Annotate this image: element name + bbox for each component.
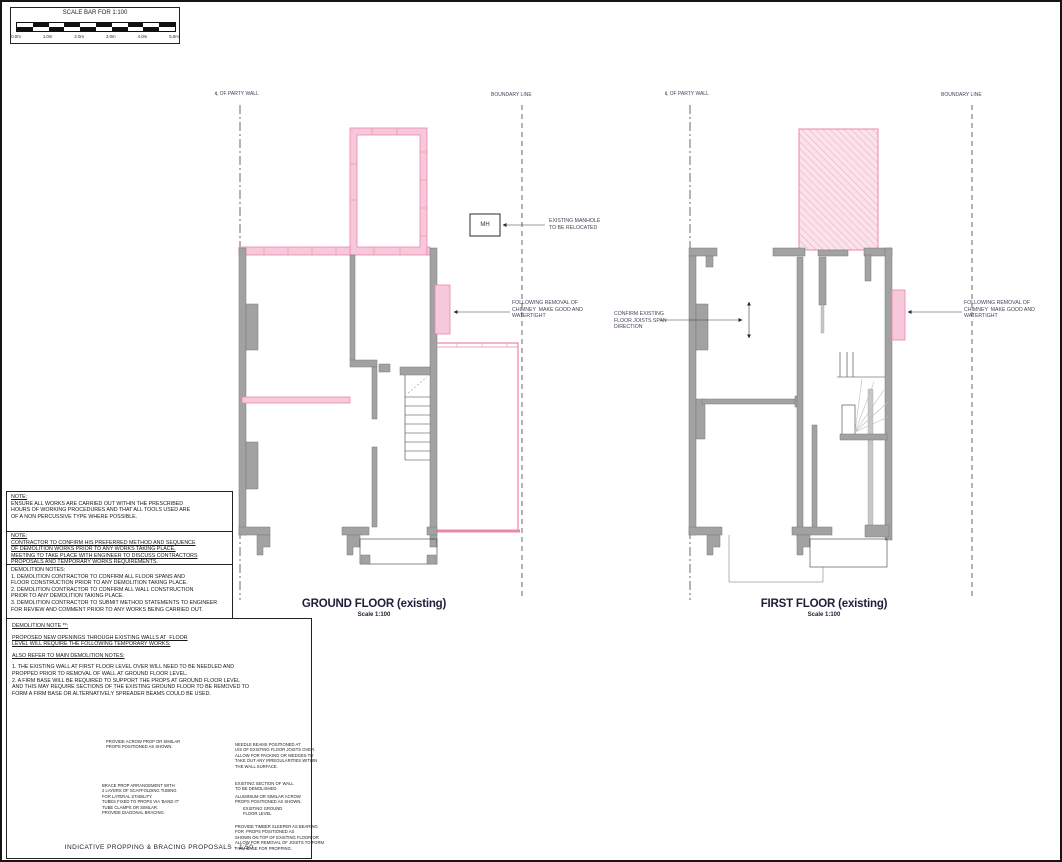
first-floor-plan [661, 105, 972, 600]
gf-front-wall [239, 527, 437, 555]
scale-tick-label: 0.0m [7, 34, 25, 39]
gf-spine-wall [350, 255, 355, 360]
drawing-sheet: SCALE BAR FOR 1:100 0.0m 1.0m 2.0m 3.0m … [0, 0, 1062, 862]
ground-floor-plan [239, 105, 545, 600]
demolition-note-heading: DEMOLITION NOTE **: [12, 623, 306, 630]
scale-tick-label: 2.0m [70, 34, 88, 39]
ff-spine-wall [797, 257, 803, 540]
gf-chimney-breast-2 [246, 442, 258, 489]
ff-title: FIRST FLOOR (existing) [729, 598, 919, 610]
gf-stair-wall [400, 367, 430, 375]
gf-bay-window [360, 539, 437, 564]
note-box-1: NOTE: ENSURE ALL WORKS ARE CARRIED OUT W… [6, 491, 233, 532]
note-1-heading: NOTE: [11, 494, 27, 500]
gf-party-wall [239, 248, 246, 535]
demolition-note-para1: PROPOSED NEW OPENINGS THROUGH EXISTING W… [12, 635, 306, 648]
note-2-body: CONTRACTOR TO CONFIRM HIS PREFERRED METH… [11, 540, 228, 566]
prop-annotation-needle: NEEDLE BEAMS POSITIONED AT U/S OF EXISTI… [235, 742, 317, 769]
note-2-heading: NOTE: [11, 533, 27, 539]
prop-annotation-props: PROVIDE ACROW PROP OR SIMILAR PROPS POSI… [106, 739, 180, 750]
ff-joist-note: CONFIRM EXISTING FLOOR JOISTS SPAN DIREC… [614, 311, 667, 331]
ff-demolition-hatch-pink [799, 129, 878, 250]
prop-annotation-ground: EXISTING GROUND FLOOR LEVEL [243, 806, 282, 817]
gf-side-return-pink [437, 343, 520, 531]
ff-party-wall [689, 256, 696, 535]
demolition-notes-heading: DEMOLITION NOTES: [11, 567, 65, 573]
manhole-tag: MH [470, 214, 500, 236]
scale-tick-label: 5.0m [165, 34, 183, 39]
scale-tick-label: 1.0m [39, 34, 57, 39]
manhole-note: EXISTING MANHOLE TO BE RELOCATED [549, 218, 600, 231]
ff-boundary-label: BOUNDARY LINE [941, 92, 982, 99]
ff-chimney-breast-1 [696, 304, 708, 350]
note-1-body: ENSURE ALL WORKS ARE CARRIED OUT WITHIN … [11, 501, 228, 521]
gf-boundary-label: BOUNDARY LINE [491, 92, 532, 99]
gf-chimney-note: FOLLOWING REMOVAL OF CHIMNEY MAKE GOOD A… [512, 300, 583, 320]
scale-tick-label: 4.0m [133, 34, 151, 39]
scale-bar-title: SCALE BAR FOR 1:100 [11, 10, 179, 16]
scale-bar: SCALE BAR FOR 1:100 0.0m 1.0m 2.0m 3.0m … [10, 7, 180, 44]
ff-chimney-note: FOLLOWING REMOVAL OF CHIMNEY MAKE GOOD A… [964, 300, 1035, 320]
gf-stairs [405, 375, 430, 460]
ff-chimney-breast-2 [696, 399, 705, 439]
gf-rear-projection-pink [350, 128, 427, 255]
ff-right-wall [885, 248, 892, 540]
gf-chimney-pink [435, 285, 450, 334]
ff-partition [812, 425, 817, 529]
demolition-notes-body: 1. DEMOLITION CONTRACTOR TO CONFIRM ALL … [11, 574, 228, 614]
demolition-notes-box: DEMOLITION NOTES: 1. DEMOLITION CONTRACT… [6, 564, 233, 619]
ff-front-wall [689, 525, 889, 555]
propping-caption: INDICATIVE PROPPING & BRACING PROPOSALS … [6, 844, 312, 851]
note-box-2: NOTE: CONTRACTOR TO CONFIRM HIS PREFERRE… [6, 531, 233, 565]
ff-rear-wall [689, 248, 892, 267]
prop-annotation-brace: BRACE PROP ARRANGEMENT WITH 2 LAYERS OF … [102, 783, 179, 816]
gf-title: GROUND FLOOR (existing) [279, 598, 469, 610]
prop-annotation-wall: EXISTING SECTION OF WALL TO BE DEMOLISHE… [235, 781, 294, 792]
demolition-note-para2: ALSO REFER TO MAIN DEMOLITION NOTES: [12, 653, 306, 660]
ff-chimney-pink [892, 290, 905, 340]
ff-scale: Scale 1:100 [729, 612, 919, 618]
gf-chimney-breast-1 [246, 304, 258, 350]
ff-internal-wall [702, 399, 795, 404]
scale-bar-labels: 0.0m 1.0m 2.0m 3.0m 4.0m 5.0m [16, 34, 174, 42]
ff-stairs [837, 352, 888, 440]
prop-annotation-acrow: ALUMINIUM OR SIMILAR ACROW PROPS POSITIO… [235, 794, 302, 805]
scale-tick-label: 3.0m [102, 34, 120, 39]
gf-internal-wall-pink [242, 397, 350, 403]
demolition-note-para3: 1. THE EXISTING WALL AT FIRST FLOOR LEVE… [12, 664, 306, 697]
scale-bar-graphic [16, 22, 176, 32]
ff-party-wall-label: ℄ OF PARTY WALL [665, 91, 709, 98]
gf-party-wall-label: ℄ OF PARTY WALL [215, 91, 259, 98]
